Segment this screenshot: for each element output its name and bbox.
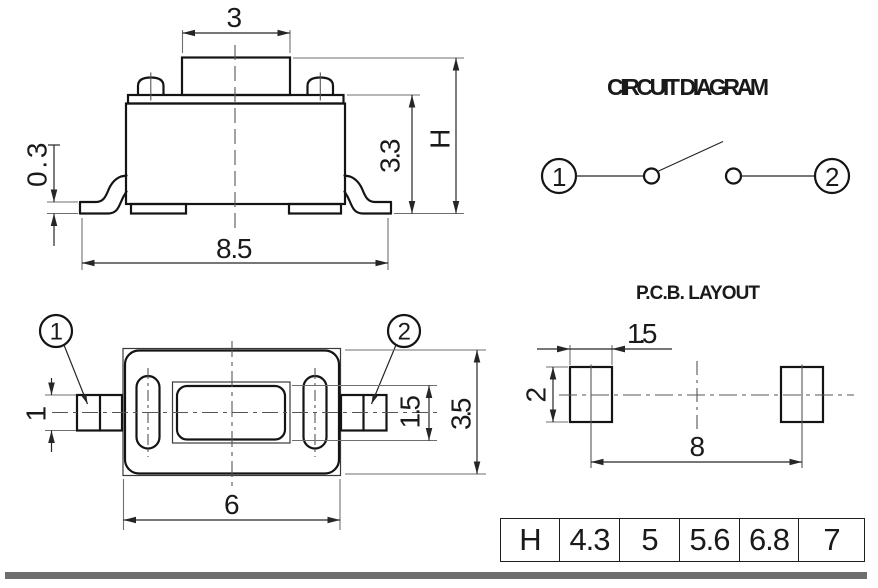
dim-total-height: H xyxy=(425,129,456,149)
dim15pcb-arrow-left xyxy=(557,346,570,353)
dim-terminal-width: 1 xyxy=(21,406,52,421)
callout-2-label: 2 xyxy=(398,319,411,346)
table-value-3: 5.6 xyxy=(679,519,739,561)
terminal-2-label: 2 xyxy=(825,162,839,192)
dim-pad-width: 1.5 xyxy=(627,318,657,349)
datasheet-page: 3 0.3 8.5 3.3 H CIRCUIT DIAGRAM 1 2 xyxy=(0,0,878,588)
dim-body-width: 6 xyxy=(224,489,239,520)
table-value-2: 5 xyxy=(619,519,679,561)
plunger-outline xyxy=(182,58,290,96)
circuit-diagram: CIRCUIT DIAGRAM 1 2 xyxy=(542,74,849,193)
right-lead-top-contour xyxy=(345,176,392,203)
footer-divider-bar xyxy=(5,572,867,579)
dim-body-depth: 3.5 xyxy=(446,398,477,430)
switch-lever xyxy=(658,142,724,172)
table-value-1: 4.3 xyxy=(559,519,619,561)
dim-pad-height: 2 xyxy=(521,387,552,402)
side-view: 3 0.3 8.5 3.3 H xyxy=(22,2,465,270)
dim-actuator-depth: 1.5 xyxy=(395,396,426,429)
table-header-h: H xyxy=(501,519,559,561)
height-dimension-table: H 4.3 5 5.6 6.8 7 xyxy=(500,518,865,562)
left-lead-top-contour xyxy=(80,176,127,203)
top-view: 1 2 1 1.5 3.5 6 xyxy=(21,315,487,530)
dim15pcb-arrow-right xyxy=(612,346,625,353)
dim-body-height: 3.3 xyxy=(375,139,406,173)
table-value-5: 7 xyxy=(798,519,864,561)
pcb-layout-title: P.C.B. LAYOUT xyxy=(636,283,760,304)
circuit-diagram-title: CIRCUIT DIAGRAM xyxy=(607,74,769,100)
contact-point-left xyxy=(644,169,659,184)
dim-standoff: 0.3 xyxy=(22,143,53,187)
terminal-1-label: 1 xyxy=(552,162,566,192)
dim-base-width: 8.5 xyxy=(216,233,252,264)
callout-1-label: 1 xyxy=(50,319,63,346)
left-base-foot xyxy=(131,204,186,214)
dim-top-width: 3 xyxy=(226,2,241,33)
right-base-foot xyxy=(289,204,341,214)
pcb-layout: P.C.B. LAYOUT 1.5 2 8 xyxy=(521,283,855,468)
table-value-4: 6.8 xyxy=(739,519,798,561)
technical-drawing: 3 0.3 8.5 3.3 H CIRCUIT DIAGRAM 1 2 xyxy=(0,0,878,588)
contact-point-right xyxy=(726,169,741,184)
dim-pad-pitch: 8 xyxy=(689,431,704,462)
cover-plate-outline xyxy=(128,95,344,104)
